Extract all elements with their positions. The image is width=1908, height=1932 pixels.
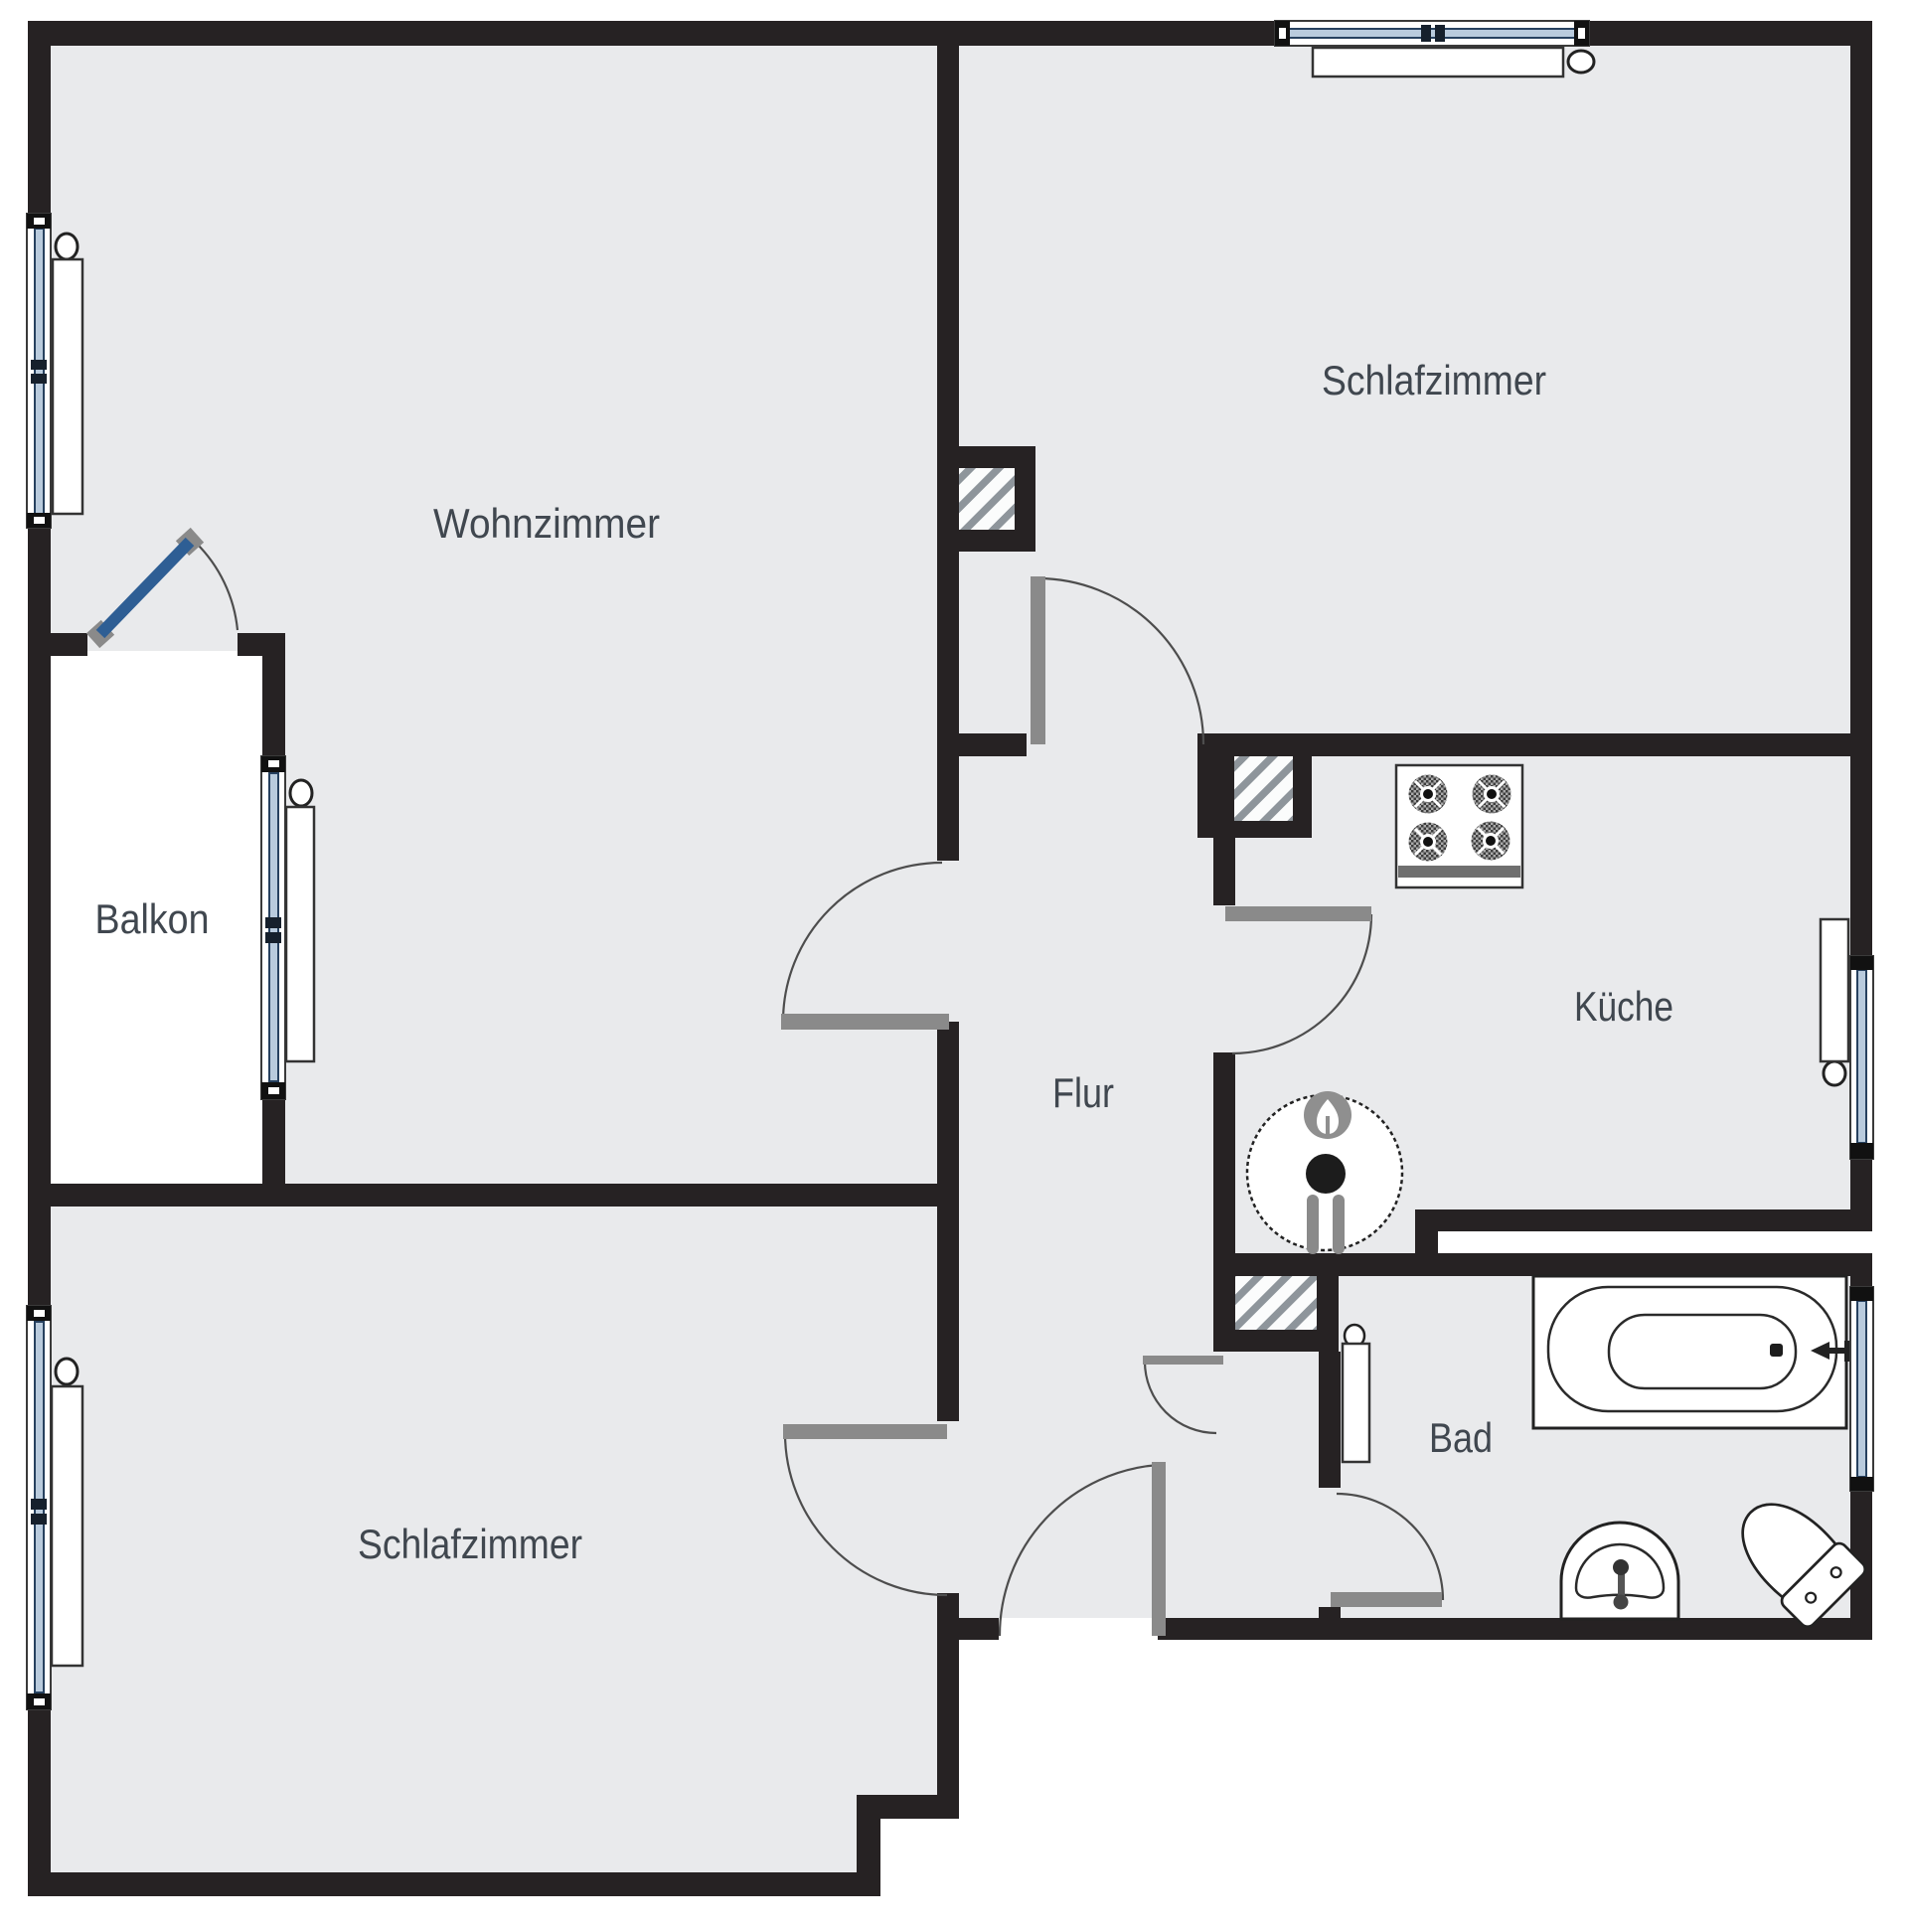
svg-text:Wohnzimmer: Wohnzimmer <box>433 500 660 547</box>
svg-text:Flur: Flur <box>1052 1069 1114 1116</box>
svg-text:Balkon: Balkon <box>95 895 210 942</box>
svg-text:Küche: Küche <box>1574 983 1673 1030</box>
svg-text:Schlafzimmer: Schlafzimmer <box>1322 357 1546 403</box>
svg-text:Bad: Bad <box>1429 1414 1493 1461</box>
svg-text:Schlafzimmer: Schlafzimmer <box>358 1521 582 1567</box>
